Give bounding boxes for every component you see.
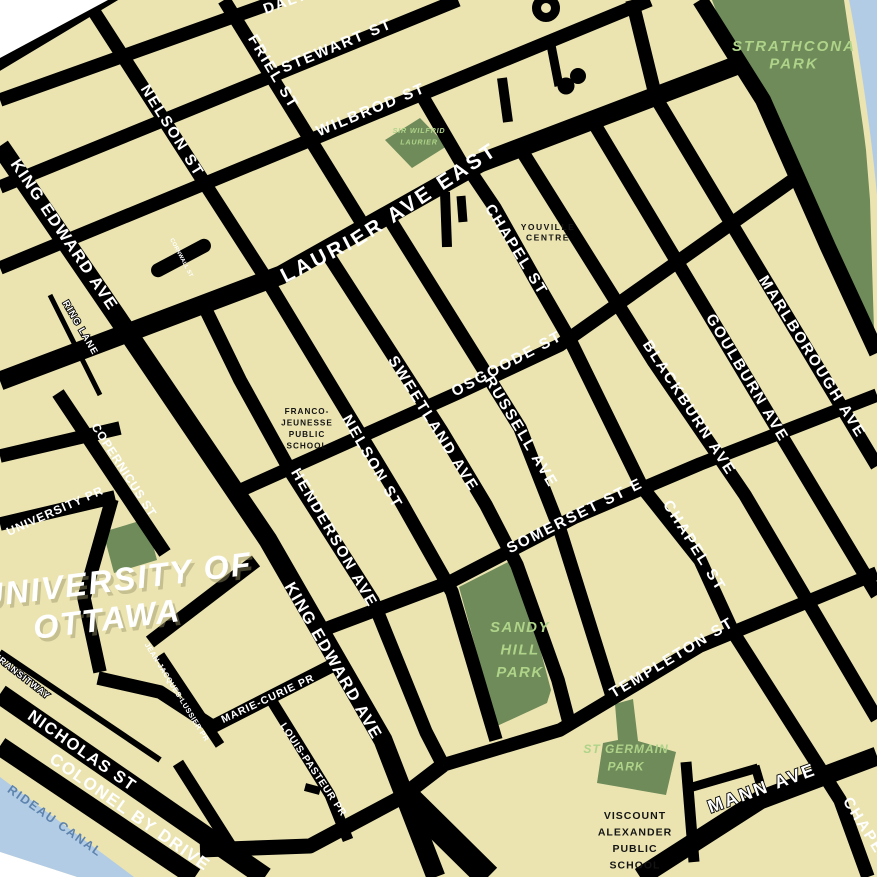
svg-text:YOUVILLECENTRE: YOUVILLECENTRE <box>521 222 576 243</box>
